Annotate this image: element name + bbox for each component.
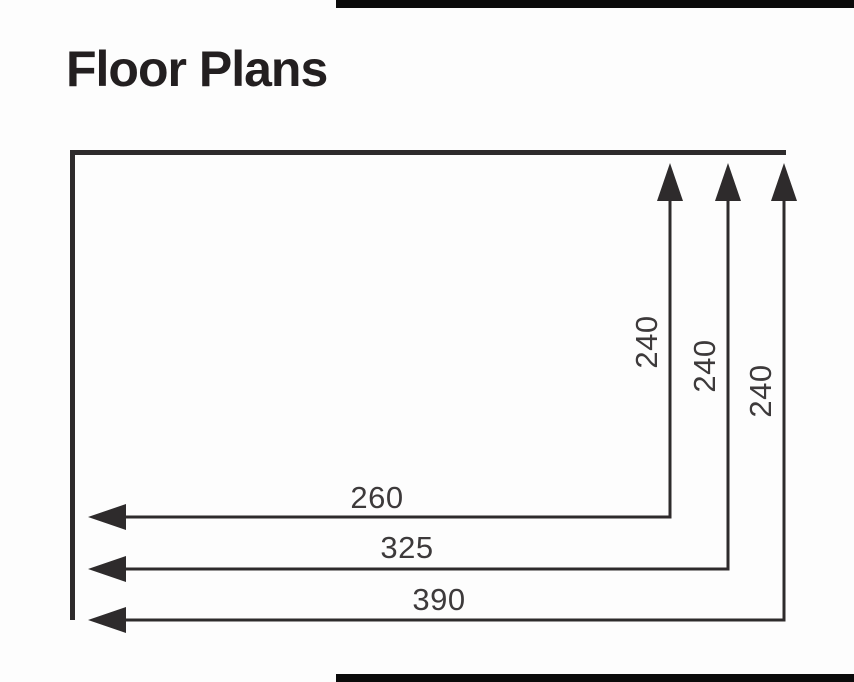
arrow-left-icon <box>88 556 126 582</box>
arrow-up-icon <box>771 163 797 201</box>
dimension-label-vertical: 240 <box>629 315 664 368</box>
dimension-line <box>118 196 728 569</box>
dimension-label-horizontal: 260 <box>350 480 403 515</box>
dimension-arrow-middle: 240 325 <box>88 163 741 582</box>
arrow-up-icon <box>715 163 741 201</box>
wall-left-edge <box>70 150 75 620</box>
dimension-label-horizontal: 325 <box>380 530 433 565</box>
dimension-label-vertical: 240 <box>687 339 722 392</box>
floor-plan-diagram: 240 260 240 325 240 390 <box>0 0 854 682</box>
dimension-arrow-outer: 240 390 <box>88 163 797 633</box>
dimension-line <box>118 196 784 620</box>
dimension-arrow-inner: 240 260 <box>88 163 683 530</box>
dimension-label-horizontal: 390 <box>412 582 465 617</box>
floor-plans-page: Floor Plans 240 260 240 325 240 390 <box>0 0 854 682</box>
arrow-left-icon <box>88 504 126 530</box>
wall-top-edge <box>70 150 786 155</box>
dimension-label-vertical: 240 <box>743 364 778 417</box>
dimension-line <box>118 196 670 517</box>
arrow-left-icon <box>88 607 126 633</box>
arrow-up-icon <box>657 163 683 201</box>
